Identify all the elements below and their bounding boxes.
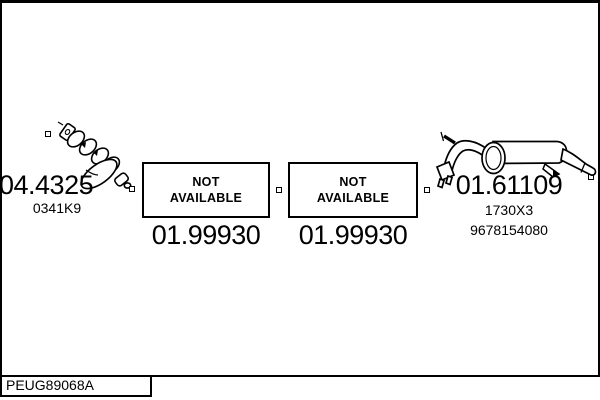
part-oe-code2-rear-silencer: 9678154080 [437, 223, 581, 238]
silencer-label-block: 01.61109 1730X3 9678154080 [437, 171, 581, 238]
connector-marker [129, 186, 135, 192]
exhaust-diagram-canvas: 04.4325 0341K9 NOT AVAILABLE 01.99930 NO… [0, 0, 600, 400]
availability-box-front: NOT AVAILABLE [142, 162, 270, 218]
availability-text-line1: NOT [192, 174, 219, 190]
part-oe-code-rear-silencer: 1730X3 [437, 203, 581, 218]
connector-marker [45, 131, 51, 137]
part-ref-rear-silencer[interactable]: 01.61109 [437, 171, 581, 199]
part-ref-manifold[interactable]: 04.4325 [0, 171, 115, 199]
availability-box-middle: NOT AVAILABLE [288, 162, 418, 218]
part-oe-code-manifold: 0341K9 [0, 201, 115, 216]
diagram-code-box: PEUG89068A [0, 375, 152, 397]
availability-text-line2: AVAILABLE [317, 190, 389, 206]
connector-marker [276, 187, 282, 193]
diagram-code: PEUG89068A [6, 377, 94, 393]
availability-text-line1: NOT [339, 174, 366, 190]
part-ref-middle-section[interactable]: 01.99930 [288, 221, 418, 249]
manifold-label-block: 04.4325 0341K9 [0, 171, 115, 216]
part-ref-front-section[interactable]: 01.99930 [142, 221, 270, 249]
availability-text-line2: AVAILABLE [170, 190, 242, 206]
